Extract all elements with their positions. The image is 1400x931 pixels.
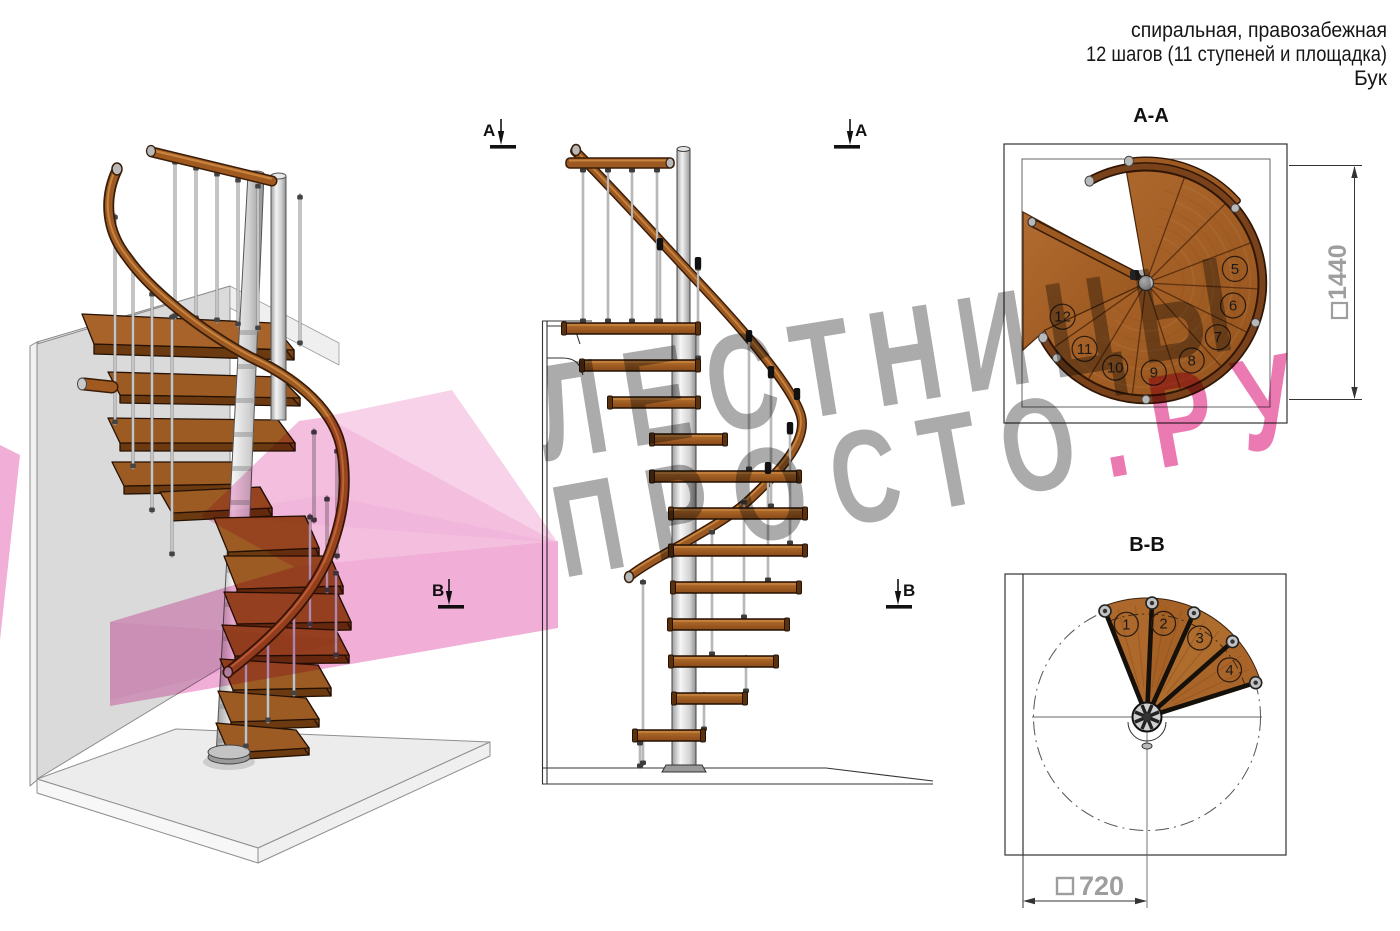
svg-text:Бук: Бук [1354,67,1388,90]
svg-text:2: 2 [1159,615,1167,632]
svg-text:А: А [483,121,495,140]
svg-text:12 шагов (11 ступеней и площад: 12 шагов (11 ступеней и площадка) [1086,43,1387,66]
svg-text:В: В [903,581,915,600]
svg-text:спиральная, правозабежная: спиральная, правозабежная [1131,19,1387,42]
svg-text:В-В: В-В [1129,534,1165,556]
svg-text:1440: 1440 [1324,244,1352,300]
svg-text:1: 1 [1122,616,1130,633]
svg-text:720: 720 [1079,871,1124,901]
svg-text:3: 3 [1196,630,1204,647]
svg-text:А: А [855,121,867,140]
svg-text:4: 4 [1225,662,1233,679]
svg-text:А-А: А-А [1133,105,1169,127]
